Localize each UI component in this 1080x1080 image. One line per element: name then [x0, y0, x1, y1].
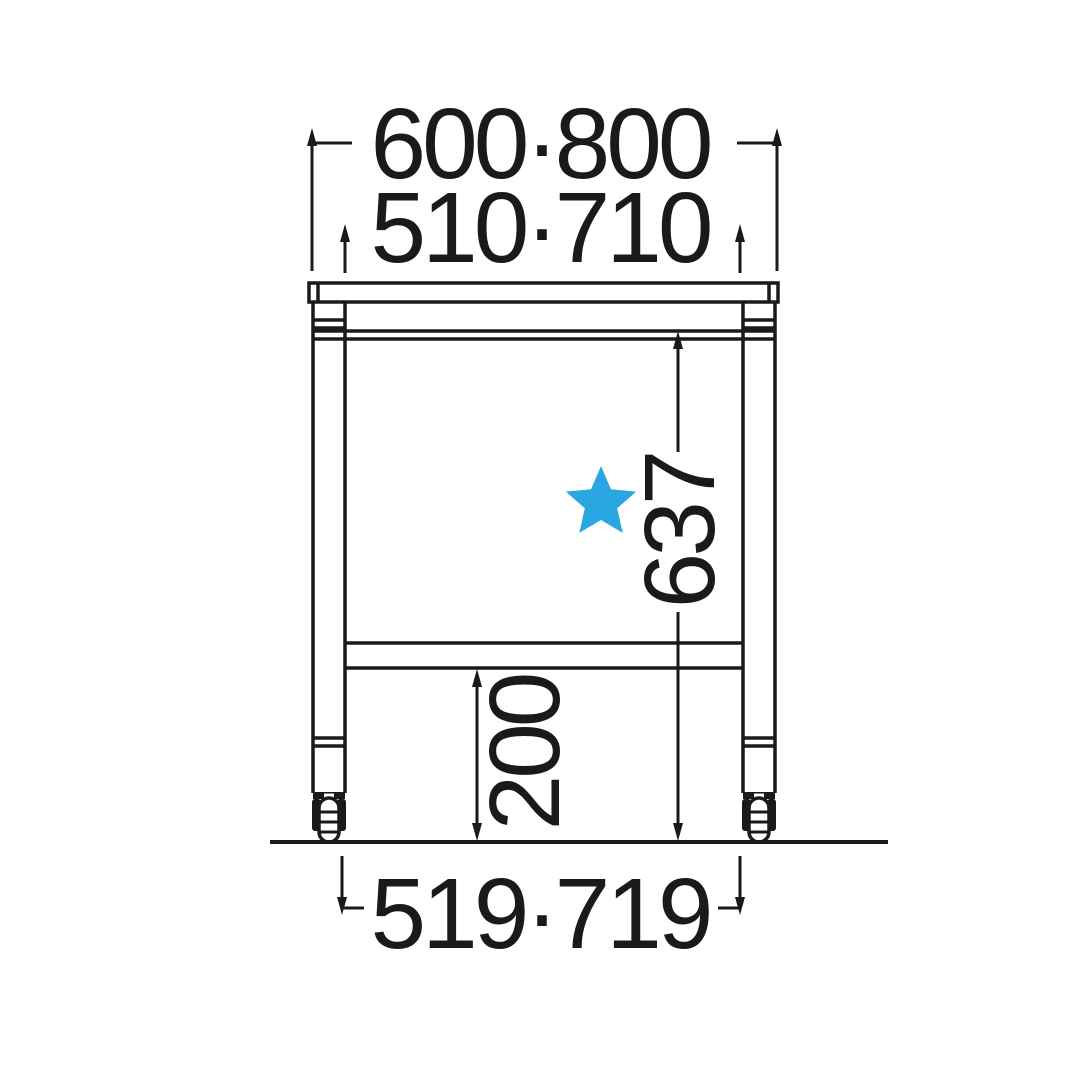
dim-label-width-top-inner: 510·710: [371, 172, 710, 284]
dim-label-height-upper: 637: [624, 454, 736, 609]
dim-height-lower: 200: [469, 669, 581, 841]
dim-width-bottom: 519·719: [337, 856, 745, 970]
dim-width-top-inner: 510·710: [340, 172, 745, 284]
dimension-drawing: 600·800 510·710 637 200: [0, 0, 1080, 1080]
dim-label-width-bottom: 519·719: [371, 858, 710, 970]
drawing-page: 600·800 510·710 637 200: [0, 0, 1080, 1080]
dim-label-height-lower: 200: [469, 675, 581, 830]
